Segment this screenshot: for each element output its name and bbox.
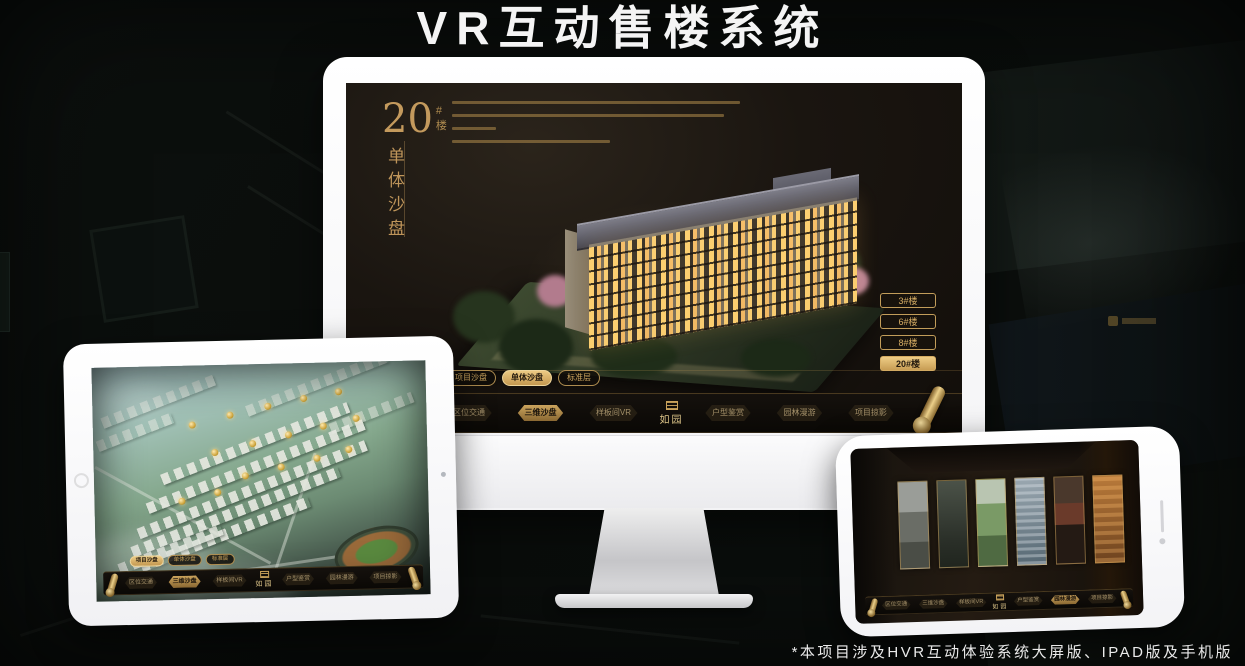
apartment-building [559,157,865,353]
logo-text: 如园 [992,601,1008,610]
phone-speaker-icon [1160,500,1164,532]
monitor-stand-neck [589,508,719,596]
nav-item-project-gallery[interactable]: 项目掠影 [844,405,898,421]
nav-item-model-room-vr[interactable]: 样板间VR [209,574,250,587]
tablet-subtabs: 项目沙盘 单体沙盘 标准层 [130,553,235,567]
nav-item-model-room-vr[interactable]: 样板间VR [585,405,642,421]
scene-panel[interactable] [1053,476,1086,565]
scene-panel[interactable] [1092,474,1125,563]
background-collage-photo [939,34,1245,276]
floor-button-8[interactable]: 8#楼 [880,335,936,350]
scene-panel[interactable] [897,481,930,570]
nav-item-floorplans[interactable]: 户型鉴赏 [1011,596,1045,607]
hero-building-suffix: #楼 [436,105,452,133]
nav-item-3d-sandbox[interactable]: 三维沙盘 [166,575,204,588]
nav-item-garden-tour[interactable]: 园林漫游 [323,572,361,585]
background-plaque [0,252,10,332]
tablet-screen: 项目沙盘 单体沙盘 标准层 区位交通 三维沙盘 样板间VR 如园 户型鉴赏 园林… [91,360,430,602]
floor-button-panel: 3#楼 6#楼 8#楼 20#楼 [880,293,936,371]
phone-camera-icon [1159,538,1165,544]
subtab-standard-floor[interactable]: 标准层 [206,553,235,565]
floor-button-3[interactable]: 3#楼 [880,293,936,308]
logo-text: 如园 [255,579,273,589]
scene-panel-gallery [897,474,1125,569]
logo-text: 如园 [660,411,684,426]
brand-logo: 如园 [660,401,684,426]
background-brand-mark [1108,316,1118,326]
background-river-photo [995,99,1245,331]
scroll-ornament-icon[interactable] [407,566,420,587]
nav-item-3d-sandbox[interactable]: 三维沙盘 [916,599,950,610]
hero-building-number: 20 [382,99,433,139]
page-title: VR互动售楼系统 [0,0,1245,56]
scene-panel[interactable] [975,478,1008,567]
phone-screen: 区位交通 三维沙盘 样板间VR 如园 户型鉴赏 园林漫游 项目掠影 [850,440,1143,624]
nav-item-location[interactable]: 区位交通 [879,600,913,611]
tablet-device: 项目沙盘 单体沙盘 标准层 区位交通 三维沙盘 样板间VR 如园 户型鉴赏 园林… [63,336,459,627]
nav-item-project-gallery[interactable]: 项目掠影 [1085,593,1119,604]
nav-item-location[interactable]: 区位交通 [122,576,160,589]
scene-panel[interactable] [936,479,969,568]
subtab-single-sandbox[interactable]: 单体沙盘 [168,554,202,566]
tablet-home-button[interactable] [74,473,89,488]
nav-item-floorplans[interactable]: 户型鉴赏 [701,405,755,421]
seal-icon [996,594,1004,600]
background-plaque [89,215,199,323]
monitor-subtabs: 项目沙盘 单体沙盘 标准层 [446,370,600,386]
floor-button-6[interactable]: 6#楼 [880,314,936,329]
brand-logo: 如园 [255,571,273,589]
scroll-ornament-icon[interactable] [868,597,878,614]
nav-item-garden-tour[interactable]: 园林漫游 [1048,595,1082,606]
tablet-camera-icon [441,472,446,477]
building-model-render [441,143,901,391]
subtab-project-sandbox[interactable]: 项目沙盘 [130,555,164,567]
scene-panel[interactable] [1014,477,1047,566]
scroll-ornament-icon[interactable] [1120,589,1131,606]
nav-item-project-gallery[interactable]: 项目掠影 [366,571,404,584]
background-road-line [481,614,740,644]
subtab-single-sandbox[interactable]: 单体沙盘 [502,370,552,386]
interior-beam [886,441,1097,474]
phone-device: 区位交通 三维沙盘 样板间VR 如园 户型鉴赏 园林漫游 项目掠影 [835,426,1185,638]
nav-item-model-room-vr[interactable]: 样板间VR [953,597,989,608]
brand-logo: 如园 [992,594,1009,610]
footnote: *本项目涉及HVR互动体验系统大屏版、IPAD版及手机版 [792,641,1233,662]
subtab-standard-floor[interactable]: 标准层 [558,370,600,386]
nav-item-garden-tour[interactable]: 园林漫游 [772,405,826,421]
monitor-stand-base [555,594,753,608]
nav-item-floorplans[interactable]: 户型鉴赏 [279,573,317,586]
stage: VR互动售楼系统 20 #楼 单体沙盘 [0,0,1245,666]
nav-item-3d-sandbox[interactable]: 三维沙盘 [513,405,567,421]
floor-button-20[interactable]: 20#楼 [880,356,936,371]
background-brand-mark [1122,318,1156,324]
scroll-ornament-icon[interactable] [107,573,119,594]
hero-divider [404,141,405,237]
seal-icon [260,571,269,578]
seal-icon [666,401,678,410]
